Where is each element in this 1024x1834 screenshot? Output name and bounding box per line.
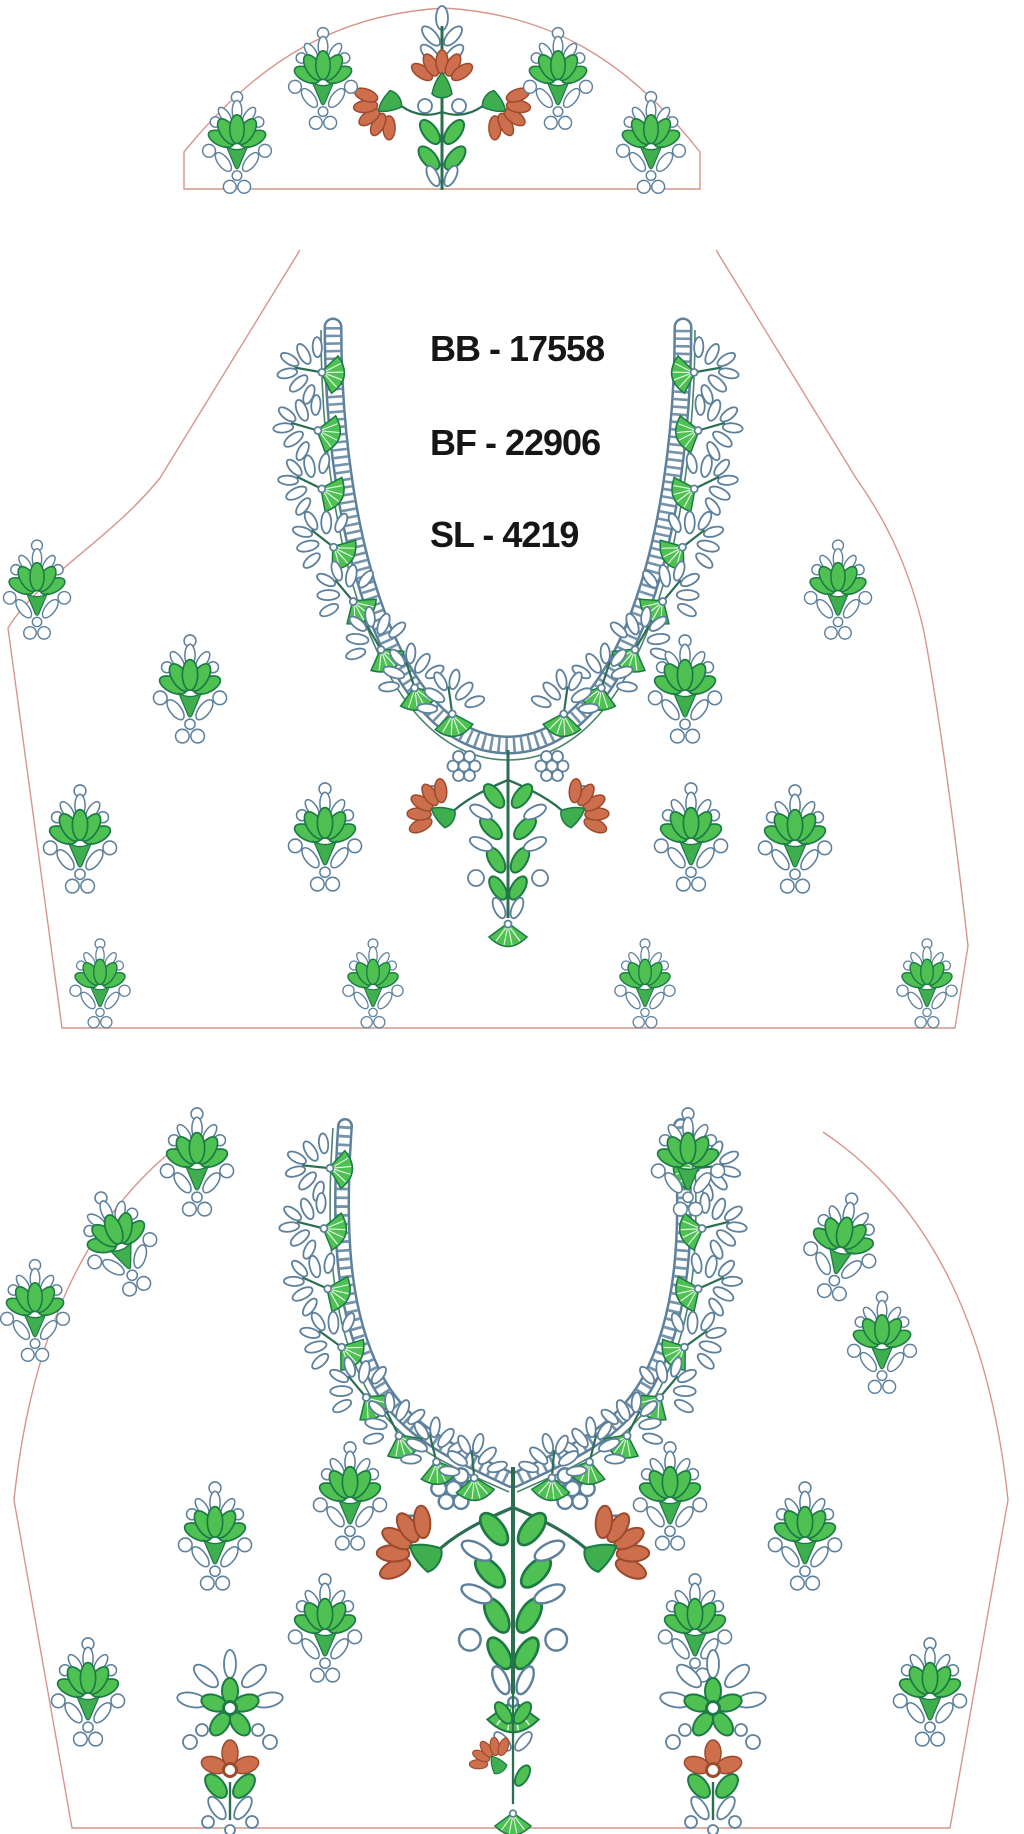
buti-motif <box>313 1442 386 1550</box>
buti-motif <box>848 1292 917 1394</box>
buti-motif <box>288 1574 361 1682</box>
buti-motif <box>615 939 675 1028</box>
buti-motif <box>70 939 130 1028</box>
embroidery-design-sheet: BB - 17558 BF - 22906 SL - 4219 <box>0 0 1024 1834</box>
hemflower-motif <box>176 1650 284 1834</box>
buti-motif <box>897 939 957 1028</box>
design-canvas <box>0 0 1024 1834</box>
buti-motif <box>43 785 116 893</box>
buti-motif <box>758 785 831 893</box>
buti-motif <box>178 1482 251 1590</box>
buti-motif <box>3 540 70 639</box>
buti-motif <box>288 783 361 891</box>
buti-motif <box>51 1638 124 1746</box>
stitch-count-bf: BF - 22906 <box>430 425 600 461</box>
embroidery-motif-layer <box>1 6 967 1834</box>
buti-motif <box>160 1108 233 1216</box>
buti-motif <box>768 1482 841 1590</box>
stitch-count-bb: BB - 17558 <box>430 331 604 367</box>
buti-motif <box>804 540 871 639</box>
tailspray-motif <box>461 1692 535 1834</box>
buti-motif <box>1 1260 70 1362</box>
stitch-count-sl: SL - 4219 <box>430 517 578 553</box>
hemflower-motif <box>659 1650 767 1834</box>
pendant-motif <box>395 750 621 947</box>
buti-motif <box>893 1638 966 1746</box>
buti-motif <box>795 1186 889 1307</box>
buti-motif <box>651 1108 724 1216</box>
front-neckline-band <box>330 1126 696 1492</box>
buti-motif <box>343 939 403 1028</box>
buti-motif <box>65 1179 173 1306</box>
buti-motif <box>658 1574 731 1682</box>
buti-motif <box>153 635 226 743</box>
buti-motif <box>654 783 727 891</box>
